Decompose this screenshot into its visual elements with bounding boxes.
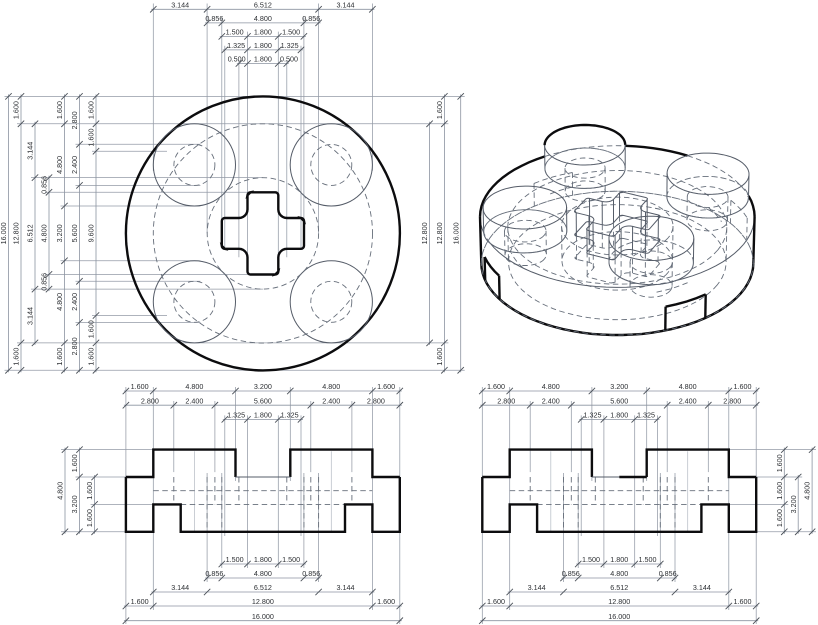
svg-text:1.600: 1.600 xyxy=(70,454,79,472)
svg-text:3.200: 3.200 xyxy=(254,382,272,391)
svg-text:0.856: 0.856 xyxy=(562,569,580,578)
svg-text:3.200: 3.200 xyxy=(70,495,79,513)
svg-text:0.856: 0.856 xyxy=(40,176,49,194)
svg-text:1.600: 1.600 xyxy=(487,597,505,606)
svg-text:1.600: 1.600 xyxy=(377,382,395,391)
svg-text:1.500: 1.500 xyxy=(639,555,657,564)
svg-text:5.600: 5.600 xyxy=(70,224,79,242)
svg-text:2.800: 2.800 xyxy=(141,396,159,405)
svg-text:2.400: 2.400 xyxy=(185,396,203,405)
svg-text:3.144: 3.144 xyxy=(26,307,35,325)
svg-text:12.800: 12.800 xyxy=(435,222,444,244)
svg-text:4.800: 4.800 xyxy=(322,382,340,391)
svg-text:1.600: 1.600 xyxy=(55,348,64,366)
svg-text:0.856: 0.856 xyxy=(302,14,320,23)
svg-text:1.325: 1.325 xyxy=(281,41,299,50)
svg-text:1.600: 1.600 xyxy=(131,382,149,391)
svg-text:1.500: 1.500 xyxy=(582,555,600,564)
svg-text:4.800: 4.800 xyxy=(40,224,49,242)
svg-text:0.500: 0.500 xyxy=(228,55,246,64)
svg-text:4.800: 4.800 xyxy=(185,382,203,391)
svg-text:16.000: 16.000 xyxy=(451,222,460,244)
svg-text:3.144: 3.144 xyxy=(171,1,189,10)
svg-text:1.600: 1.600 xyxy=(734,597,752,606)
svg-text:3.144: 3.144 xyxy=(337,1,355,10)
svg-text:1.325: 1.325 xyxy=(281,411,299,420)
svg-text:4.800: 4.800 xyxy=(679,382,697,391)
svg-text:1.800: 1.800 xyxy=(254,41,272,50)
svg-text:1.600: 1.600 xyxy=(87,348,96,366)
svg-text:1.325: 1.325 xyxy=(227,411,245,420)
svg-text:1.325: 1.325 xyxy=(584,411,602,420)
svg-text:16.000: 16.000 xyxy=(608,612,630,621)
svg-text:1.800: 1.800 xyxy=(610,555,628,564)
svg-text:3.200: 3.200 xyxy=(789,495,798,513)
svg-text:2.800: 2.800 xyxy=(723,396,741,405)
svg-text:1.800: 1.800 xyxy=(610,411,628,420)
svg-text:2.800: 2.800 xyxy=(497,396,515,405)
svg-text:6.512: 6.512 xyxy=(254,583,272,592)
svg-text:0.856: 0.856 xyxy=(205,569,223,578)
svg-text:4.800: 4.800 xyxy=(254,14,272,23)
svg-text:3.144: 3.144 xyxy=(337,583,355,592)
svg-text:1.600: 1.600 xyxy=(734,382,752,391)
svg-text:4.800: 4.800 xyxy=(56,482,65,500)
svg-text:1.600: 1.600 xyxy=(87,101,96,119)
svg-text:3.144: 3.144 xyxy=(693,583,711,592)
svg-text:12.800: 12.800 xyxy=(252,597,274,606)
svg-text:1.600: 1.600 xyxy=(12,348,21,366)
svg-text:3.144: 3.144 xyxy=(171,583,189,592)
svg-text:4.800: 4.800 xyxy=(542,382,560,391)
svg-text:3.144: 3.144 xyxy=(528,583,546,592)
svg-text:16.000: 16.000 xyxy=(252,612,274,621)
svg-text:1.600: 1.600 xyxy=(487,382,505,391)
svg-text:1.600: 1.600 xyxy=(775,482,784,500)
svg-text:5.600: 5.600 xyxy=(610,396,628,405)
svg-text:1.600: 1.600 xyxy=(377,597,395,606)
svg-text:6.512: 6.512 xyxy=(254,1,272,10)
svg-text:1.800: 1.800 xyxy=(254,28,272,37)
svg-text:1.600: 1.600 xyxy=(435,101,444,119)
svg-text:1.500: 1.500 xyxy=(226,555,244,564)
svg-text:0.856: 0.856 xyxy=(40,273,49,291)
svg-text:1.600: 1.600 xyxy=(435,348,444,366)
svg-text:1.600: 1.600 xyxy=(12,101,21,119)
svg-text:12.800: 12.800 xyxy=(608,597,630,606)
svg-text:1.325: 1.325 xyxy=(637,411,655,420)
svg-text:0.856: 0.856 xyxy=(302,569,320,578)
svg-text:1.600: 1.600 xyxy=(85,509,94,527)
svg-text:4.800: 4.800 xyxy=(55,293,64,311)
svg-text:2.400: 2.400 xyxy=(70,156,79,174)
svg-text:3.200: 3.200 xyxy=(610,382,628,391)
svg-text:1.800: 1.800 xyxy=(254,55,272,64)
svg-text:16.000: 16.000 xyxy=(0,222,8,244)
svg-text:1.800: 1.800 xyxy=(254,411,272,420)
svg-text:5.600: 5.600 xyxy=(254,396,272,405)
svg-text:1.600: 1.600 xyxy=(775,454,784,472)
svg-text:2.800: 2.800 xyxy=(70,111,79,129)
svg-text:9.600: 9.600 xyxy=(87,224,96,242)
svg-text:2.400: 2.400 xyxy=(70,293,79,311)
svg-text:3.144: 3.144 xyxy=(26,142,35,160)
svg-text:6.512: 6.512 xyxy=(26,224,35,242)
svg-text:0.856: 0.856 xyxy=(659,569,677,578)
svg-text:4.800: 4.800 xyxy=(803,482,812,500)
svg-text:6.512: 6.512 xyxy=(610,583,628,592)
svg-text:0.500: 0.500 xyxy=(280,55,298,64)
svg-text:1.500: 1.500 xyxy=(282,555,300,564)
svg-text:1.500: 1.500 xyxy=(282,28,300,37)
svg-text:4.800: 4.800 xyxy=(55,156,64,174)
svg-text:1.600: 1.600 xyxy=(87,129,96,147)
svg-text:2.800: 2.800 xyxy=(367,396,385,405)
svg-text:2.800: 2.800 xyxy=(70,337,79,355)
svg-text:1.600: 1.600 xyxy=(85,482,94,500)
svg-text:1.600: 1.600 xyxy=(87,320,96,338)
svg-text:0.856: 0.856 xyxy=(205,14,223,23)
svg-text:4.800: 4.800 xyxy=(610,569,628,578)
svg-text:1.325: 1.325 xyxy=(227,41,245,50)
svg-text:2.400: 2.400 xyxy=(542,396,560,405)
svg-text:4.800: 4.800 xyxy=(254,569,272,578)
svg-text:3.200: 3.200 xyxy=(55,224,64,242)
svg-text:2.400: 2.400 xyxy=(322,396,340,405)
svg-text:1.600: 1.600 xyxy=(131,597,149,606)
svg-text:1.500: 1.500 xyxy=(226,28,244,37)
svg-text:12.800: 12.800 xyxy=(12,222,21,244)
svg-text:1.600: 1.600 xyxy=(55,101,64,119)
svg-text:1.600: 1.600 xyxy=(775,509,784,527)
svg-text:2.400: 2.400 xyxy=(679,396,697,405)
svg-text:1.800: 1.800 xyxy=(254,555,272,564)
svg-text:12.800: 12.800 xyxy=(420,222,429,244)
